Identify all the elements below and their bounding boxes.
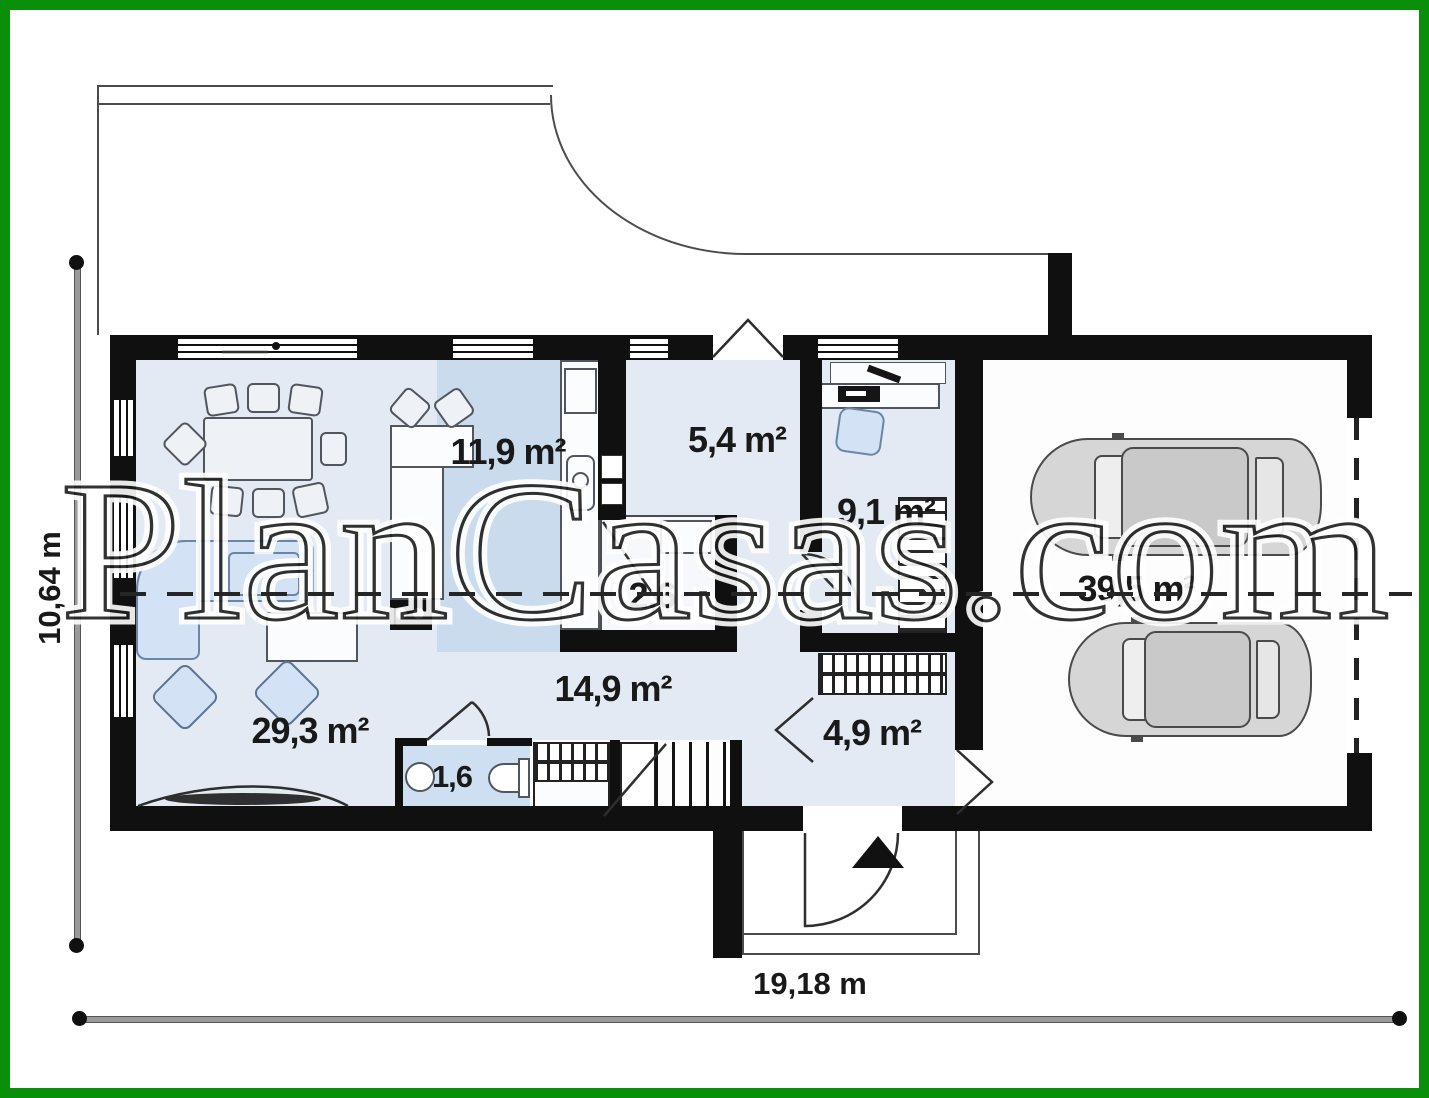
- dimension-dot: [69, 938, 84, 953]
- entrance-arrow-icon: [852, 836, 904, 868]
- desk-lamp-icon: [868, 368, 900, 380]
- room-label-office: 9,1 m²: [837, 491, 935, 533]
- wc-door-leaf: [427, 702, 472, 740]
- dimension-dot: [1392, 1011, 1407, 1026]
- room-label-garage: 39,5 m²: [1077, 568, 1194, 610]
- wc-door-arc: [472, 702, 489, 736]
- desk-printer-slot-icon: [846, 391, 866, 396]
- room-label-kitchen: 11,9 m²: [450, 431, 565, 473]
- room-label-living: 29,3 m²: [251, 710, 368, 752]
- dimension-line-height: [74, 262, 81, 947]
- dimension-dot: [72, 1011, 87, 1026]
- room-label-hall: 5,4 m²: [688, 419, 786, 461]
- room-label-corridor: 14,9 m²: [554, 668, 671, 710]
- plan-symbols-layer: [0, 0, 1429, 1098]
- dimension-dot: [69, 255, 84, 270]
- stairs-direction-line: [604, 744, 666, 816]
- dimension-label-width: 19,18 m: [700, 966, 920, 1002]
- room-label-vestibule: 4,9 m²: [823, 712, 921, 754]
- garage-opening-zigzag-icon: [957, 750, 992, 814]
- room-label-closet: 2,6: [628, 575, 675, 617]
- section-dashed-line: [120, 592, 1412, 596]
- tv-set-icon: [165, 793, 321, 805]
- door-handle-dot-icon: [272, 342, 280, 350]
- vestibule-opening-zigzag-icon: [776, 698, 813, 762]
- terrace-door-zigzag-icon: [713, 320, 783, 357]
- dimension-line-width: [78, 1016, 1400, 1023]
- floor-plan-image: PlanCasas.com PlanCasas.com 11,9 m² 5,4 …: [0, 0, 1429, 1098]
- office-door-leaf: [802, 554, 841, 595]
- room-label-wc: 1,6: [432, 759, 472, 795]
- dimension-label-height: 10,64 m: [32, 518, 68, 658]
